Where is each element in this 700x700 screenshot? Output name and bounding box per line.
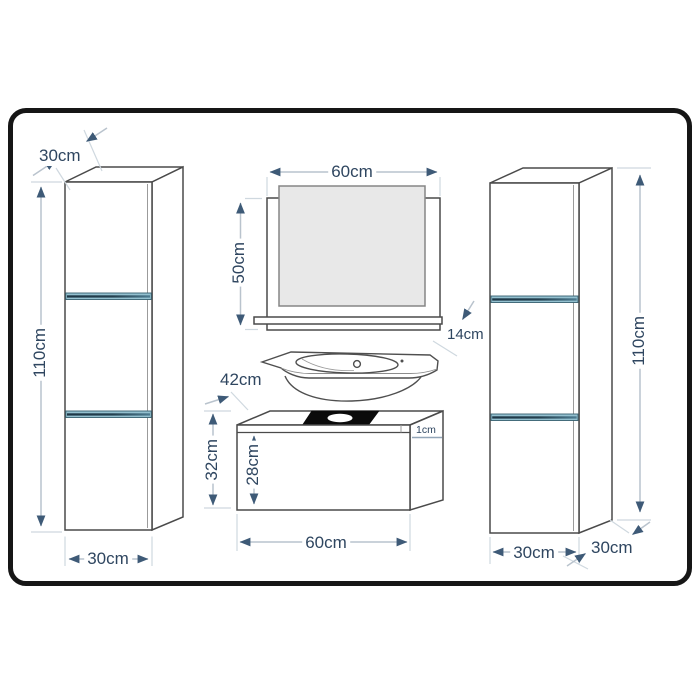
label-basin-depth: 42cm bbox=[217, 370, 265, 390]
label-right-cabinet-width: 30cm bbox=[510, 543, 558, 563]
right-cabinet-side-panel bbox=[579, 168, 612, 533]
label-mirror-width: 60cm bbox=[328, 162, 376, 182]
diagram-canvas: 30cm 110cm 30cm 60cm 50cm 14cm 42cm 32cm… bbox=[0, 0, 700, 700]
overflow-dot bbox=[401, 360, 404, 363]
label-shelf-depth: 14cm bbox=[444, 326, 487, 344]
left-cabinet-divider-bottom bbox=[66, 411, 152, 418]
furniture-line-art bbox=[0, 0, 700, 700]
label-vanity-height: 32cm bbox=[202, 436, 222, 484]
label-mirror-height: 50cm bbox=[229, 239, 249, 287]
left-tall-cabinet bbox=[65, 167, 183, 530]
right-cabinet-front bbox=[490, 183, 579, 533]
label-left-cabinet-width: 30cm bbox=[84, 549, 132, 569]
left-cabinet-divider-top bbox=[66, 293, 152, 300]
right-cabinet-divider-top bbox=[491, 296, 578, 303]
label-right-cabinet-height: 110cm bbox=[629, 313, 649, 369]
left-cabinet-side-panel bbox=[152, 167, 183, 530]
label-drawer-height: 28cm bbox=[243, 441, 263, 489]
dim-left-depth-b bbox=[87, 128, 108, 142]
dim-shelf-depth bbox=[463, 301, 475, 320]
right-cabinet-divider-bottom bbox=[491, 414, 578, 421]
basin-bowl bbox=[285, 376, 421, 401]
label-left-cabinet-depth: 30cm bbox=[36, 146, 84, 166]
faucet-hole bbox=[354, 361, 361, 368]
left-cabinet-front bbox=[65, 182, 152, 530]
right-tall-cabinet bbox=[490, 168, 612, 533]
washbasin bbox=[262, 352, 438, 401]
label-right-cabinet-depth: 30cm bbox=[588, 538, 636, 558]
dim-right-depth-a bbox=[633, 522, 651, 535]
vanity-cabinet bbox=[237, 411, 443, 510]
mirror-unit bbox=[254, 186, 442, 330]
vanity-front bbox=[237, 425, 410, 510]
mirror-glass bbox=[279, 186, 425, 306]
label-left-cabinet-height: 110cm bbox=[30, 325, 50, 381]
dim-basin-depth bbox=[205, 397, 229, 405]
label-vanity-width: 60cm bbox=[302, 533, 350, 553]
drain-hole bbox=[328, 414, 353, 422]
mirror-shelf bbox=[254, 317, 442, 324]
label-top-thickness: 1cm bbox=[414, 425, 438, 436]
